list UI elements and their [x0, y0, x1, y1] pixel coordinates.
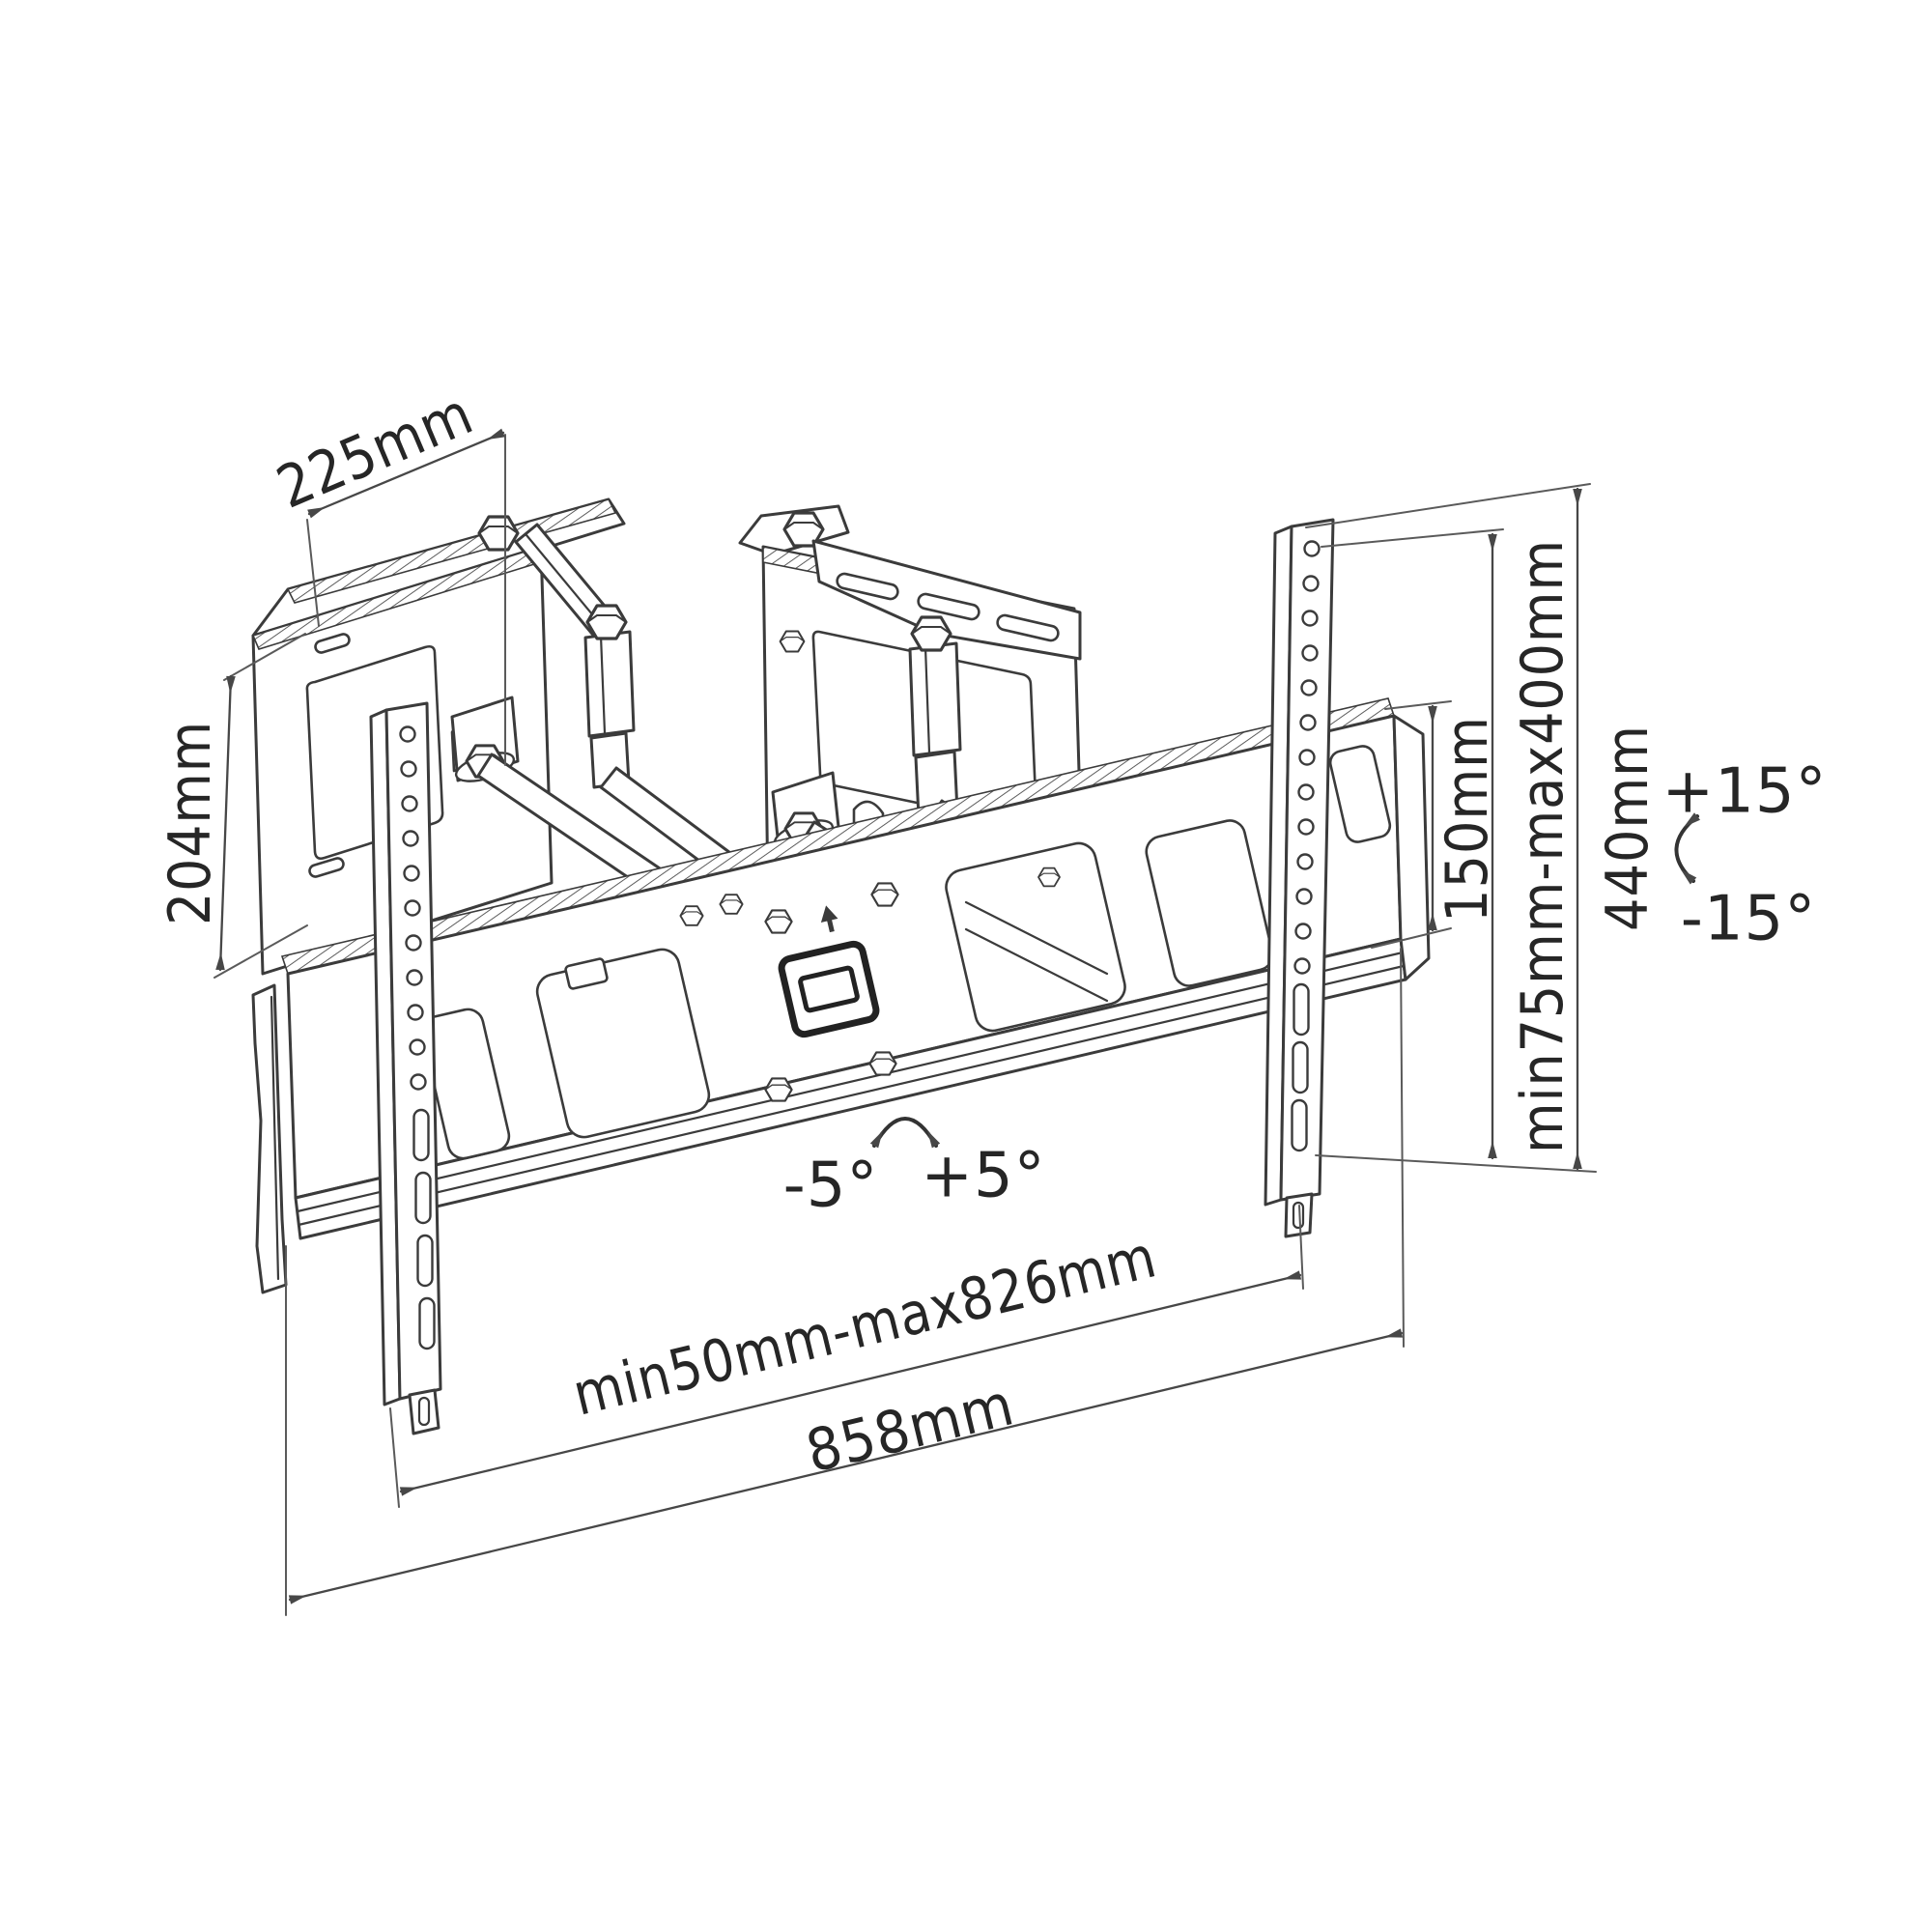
pivot-bolt-left [587, 606, 626, 639]
dim-label-flange-width: 225mm [268, 380, 482, 522]
dim-label-tilt-up: +15° [1662, 755, 1827, 827]
bar-bolt-1 [765, 910, 791, 932]
bar-left-end-clip [253, 985, 286, 1293]
dim-label-wall-plate-height: 204mm [156, 721, 224, 925]
flange-bolt-left [479, 517, 518, 550]
pivot-post-left [585, 632, 634, 736]
dim-label-bracket-bar-height: 150mm [1434, 716, 1501, 923]
tv-mount-dimension-drawing: 225mm 204mm 150mm min75mm-max400mm [0, 0, 1932, 1932]
dim-label-vesa-vertical-range: min75mm-max400mm [1509, 539, 1577, 1153]
tilt-range-annotation: +15° -15° [1662, 755, 1827, 954]
bar-arm-bolt-left [680, 906, 702, 925]
rail-left-tab-slot [419, 1398, 429, 1425]
dim-label-swivel-left: -5° [783, 1150, 879, 1221]
bar-arm-bolt-left-2 [720, 895, 742, 914]
pivot-bolt-right [912, 617, 951, 650]
diagram-canvas: 225mm 204mm 150mm min75mm-max400mm [0, 0, 1932, 1932]
plate-right-small-bolt [781, 631, 805, 651]
bar-bolt-2 [871, 883, 897, 905]
vesa-rail-right [1265, 520, 1333, 1236]
pivot-post-right [910, 643, 960, 755]
swivel-range-annotation: -5° +5° [783, 1119, 1046, 1221]
dim-label-hole-span-range: min50mm-max826mm [567, 1223, 1163, 1429]
vesa-rail-left [371, 703, 440, 1434]
dim-label-rail-height: 440mm [1594, 724, 1662, 931]
bar-bolt-4 [869, 1052, 895, 1074]
bar-bolt-3 [765, 1078, 791, 1100]
rail-right-tab-slot [1293, 1203, 1303, 1228]
dim-label-swivel-right: +5° [921, 1140, 1045, 1211]
dim-label-tilt-down: -15° [1681, 883, 1817, 954]
bar-arm-bolt-right [1038, 868, 1060, 887]
